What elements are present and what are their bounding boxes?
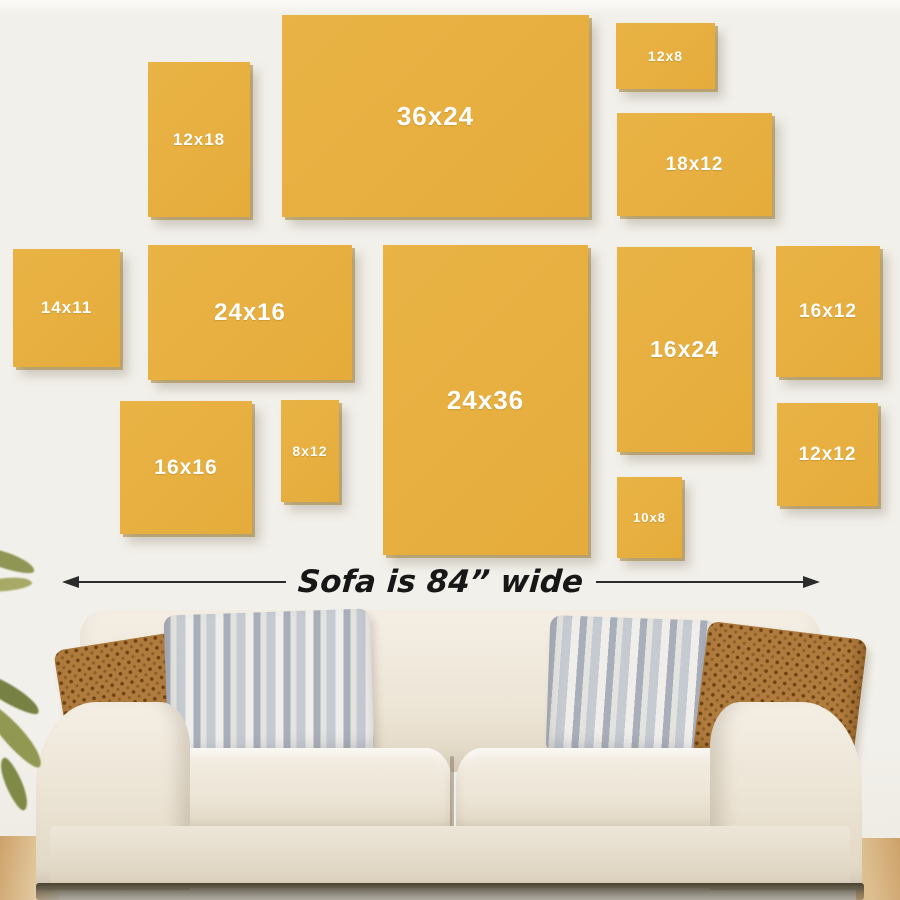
pillow-striped-right bbox=[546, 615, 717, 759]
pillow-striped-left bbox=[164, 608, 375, 761]
sofa bbox=[0, 0, 900, 900]
seat-cushion-seam bbox=[450, 756, 454, 830]
sofa-floor-shadow bbox=[36, 883, 864, 900]
sofa-base bbox=[50, 826, 850, 888]
wall-art-size-guide: 12x1836x2412x818x1214x1124x1624x3616x241… bbox=[0, 0, 900, 900]
